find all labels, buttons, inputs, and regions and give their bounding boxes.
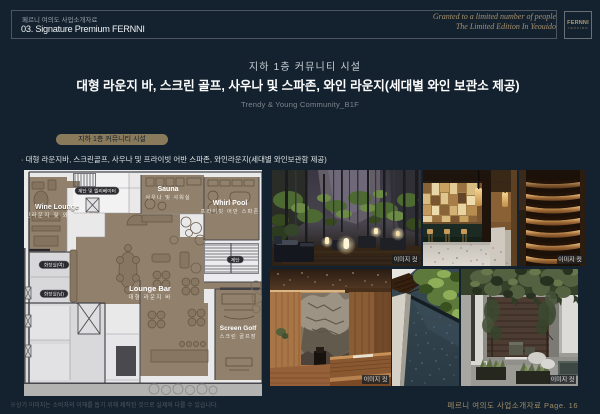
svg-text:Wine Lounge: Wine Lounge — [35, 204, 79, 211]
svg-text:Screen Golf: Screen Golf — [220, 325, 257, 332]
svg-text:화장실(남): 화장실(남) — [44, 291, 64, 298]
svg-text:이미지 컷: 이미지 컷 — [364, 376, 388, 384]
svg-text:사우나 및 샤워실: 사우나 및 샤워실 — [145, 193, 190, 201]
svg-text:계단: 계단 — [231, 256, 240, 263]
svg-text:Sauna: Sauna — [157, 186, 178, 193]
svg-text:Whirl Pool: Whirl Pool — [213, 200, 248, 207]
svg-text:대형 라운지 바: 대형 라운지 바 — [128, 293, 171, 301]
svg-text:화장실(여): 화장실(여) — [44, 262, 64, 269]
svg-text:Lounge Bar: Lounge Bar — [129, 284, 171, 293]
svg-text:이미지 컷: 이미지 컷 — [551, 376, 575, 384]
svg-text:계단 및 엘리베이터: 계단 및 엘리베이터 — [78, 188, 116, 195]
svg-text:이미지 컷: 이미지 컷 — [558, 256, 582, 264]
svg-text:와인라운지 및 와인 보관소: 와인라운지 및 와인 보관소 — [24, 211, 97, 219]
svg-text:스크린 골프장: 스크린 골프장 — [219, 333, 256, 340]
svg-text:프라이빗 어반 스파존: 프라이빗 어반 스파존 — [200, 207, 259, 215]
svg-text:이미지 컷: 이미지 컷 — [394, 256, 418, 264]
